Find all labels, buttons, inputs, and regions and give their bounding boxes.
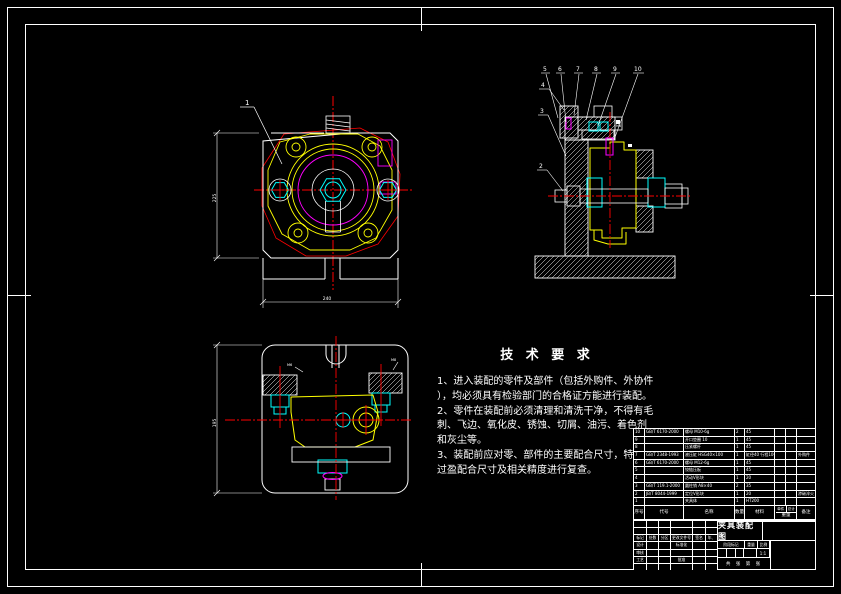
bom-cell: 1 xyxy=(735,452,744,459)
bom-cell: 1 xyxy=(735,467,744,474)
rev-header-count: 处数 xyxy=(647,535,658,541)
rev-header-date: 年、月、日 xyxy=(706,535,717,541)
side-section-view: M6 5 6 7 8 9 10 4 3 2 xyxy=(510,60,700,290)
bom-header-name: 名称 xyxy=(684,506,734,519)
bottom-dimensions xyxy=(213,342,398,496)
bom-cell xyxy=(645,437,683,444)
rev-header-doc: 更改文件号 xyxy=(671,535,692,541)
sheet-count: 共 张 第 张 xyxy=(717,557,771,570)
bom-cell: 6 xyxy=(634,460,644,467)
bom-cell xyxy=(775,475,785,482)
technical-requirements-title: 技 术 要 求 xyxy=(437,344,657,363)
front-view: 240 225 1 xyxy=(210,90,420,310)
bom-header-unit: 单件 xyxy=(776,506,787,512)
bom-cell xyxy=(645,475,683,482)
drawing-title: 夹具装配图 xyxy=(717,521,763,541)
rev-header-sign: 签名 xyxy=(693,535,705,541)
bom-cell: 45 xyxy=(745,467,774,474)
bottom-dim-right-label: M8 xyxy=(391,358,396,362)
bom-cell: 45 xyxy=(745,460,774,467)
bom-cell xyxy=(786,498,796,505)
bom-cell xyxy=(786,452,796,459)
centering-mark-bottom xyxy=(421,563,422,587)
bom-cell: 20 xyxy=(745,475,774,482)
bom-cell: GB/T 6170-2000 xyxy=(645,429,683,436)
bom-cell: 渗碳淬火 xyxy=(797,491,815,498)
bom-header-num: 序号 xyxy=(634,506,644,519)
title-block-code-cell xyxy=(762,521,816,541)
bom-cell: 1 xyxy=(735,491,744,498)
bom-cell: 45 xyxy=(745,437,774,444)
tech-req-line: 过盈配合尺寸及相关精度进行复查。 xyxy=(437,464,657,479)
role-approve: 批准 xyxy=(671,557,692,563)
title-block: 标记 处数 分区 更改文件号 签名 年、月、日 设计 标准化 审核 工艺 批准 … xyxy=(633,520,816,570)
bom-cell: 35 xyxy=(745,483,774,490)
bom-cell: 1 xyxy=(735,498,744,505)
tech-req-line: 3、装配前应对零、部件的主要配合尺寸，特别是 xyxy=(437,449,657,464)
bottom-plate-outline xyxy=(262,345,408,493)
bottom-dim-left-label: M6 xyxy=(287,363,292,367)
bom-cell: 圆柱销 A8×40 xyxy=(684,483,734,490)
front-balloon-1: 1 xyxy=(240,99,282,164)
front-seal-ring-magenta xyxy=(298,140,396,225)
bom-cell: 压紧螺杆 xyxy=(684,444,734,451)
bom-cell: 2 xyxy=(735,429,744,436)
bom-cell xyxy=(775,460,785,467)
bom-header-note: 备注 xyxy=(797,506,815,519)
bom-cell: 外购件 xyxy=(797,452,815,459)
side-fixture-body-hatched xyxy=(535,106,675,278)
bom-cell: 45 xyxy=(745,429,774,436)
bom-cell xyxy=(775,452,785,459)
bom-cell: 开口垫圈 10 xyxy=(684,437,734,444)
svg-text:7: 7 xyxy=(576,66,580,73)
bom-header-qty: 数量 xyxy=(735,506,744,519)
bom-header-material: 材料 xyxy=(745,506,774,519)
bom-cell: 铰链压板 xyxy=(684,467,734,474)
tech-req-line: 2、零件在装配前必须清理和清洗干净，不得有毛 xyxy=(437,405,657,420)
bom-cell xyxy=(645,498,683,505)
bom-cell xyxy=(786,475,796,482)
bom-cell: 夹具体 xyxy=(684,498,734,505)
side-workpiece-yellow xyxy=(590,142,636,244)
bom-cell xyxy=(797,498,815,505)
svg-text:5: 5 xyxy=(543,66,547,73)
tech-req-line: 和灰尘等。 xyxy=(437,434,657,449)
title-block-revision-grid: 标记 处数 分区 更改文件号 签名 年、月、日 设计 标准化 审核 工艺 批准 xyxy=(634,521,717,569)
front-pump-body-yellow xyxy=(268,134,392,250)
technical-requirements: 技 术 要 求 1、进入装配的零件及部件（包括外购件、外协件 ），均必须具有检验… xyxy=(437,344,657,479)
svg-text:4: 4 xyxy=(541,82,545,89)
centering-mark-right xyxy=(810,295,834,296)
tech-req-line: 1、进入装配的零件及部件（包括外购件、外协件 xyxy=(437,375,657,390)
bom-cell: 液压缸 HSG40×100 xyxy=(684,452,734,459)
bom-cell: GB/T 6170-2000 xyxy=(645,460,683,467)
bom-cell xyxy=(786,429,796,436)
bom-cell xyxy=(797,444,815,451)
role-standard: 标准化 xyxy=(671,542,692,549)
bom-cell: 定位V形块 xyxy=(684,491,734,498)
bom-cell: 1 xyxy=(735,437,744,444)
bom-cell xyxy=(775,483,785,490)
bom-cell xyxy=(645,444,683,451)
bottom-dim-height-text: 195 xyxy=(212,419,218,428)
role-check: 审核 xyxy=(634,550,646,556)
bom-cell xyxy=(775,444,785,451)
role-design: 设计 xyxy=(634,542,646,549)
side-balloon-labels-top: 5 6 7 8 9 10 xyxy=(543,66,642,73)
bom-cell: 20 xyxy=(745,491,774,498)
front-dim-height-text: 225 xyxy=(212,194,218,203)
bom-header-weight-label: 重量 xyxy=(776,513,796,519)
bom-cell: HT200 xyxy=(745,498,774,505)
front-dim-width-text: 240 xyxy=(323,296,332,302)
svg-text:9: 9 xyxy=(613,66,617,73)
bom-cell xyxy=(645,467,683,474)
bom-cell xyxy=(775,491,785,498)
bom-cell: 1 xyxy=(735,460,744,467)
bom-cell xyxy=(797,467,815,474)
bom-cell xyxy=(797,437,815,444)
bom-cell xyxy=(797,460,815,467)
bom-cell: 5 xyxy=(634,467,644,474)
bom-cell: GB/T 119.1-2000 xyxy=(645,483,683,490)
bom-cell: 10 xyxy=(634,429,644,436)
bom-cell xyxy=(786,437,796,444)
centering-mark-left xyxy=(7,295,31,296)
bom-cell: 45 xyxy=(745,444,774,451)
svg-text:3: 3 xyxy=(540,108,544,115)
bottom-section-view: 195 M6 M8 xyxy=(205,330,420,510)
bottom-fasteners-cyan xyxy=(271,393,390,473)
bom-cell: GB/T 2348-1993 xyxy=(645,452,683,459)
bottom-base-band xyxy=(292,447,390,490)
bom-cell: 1 xyxy=(735,475,744,482)
bom-cell: 1 xyxy=(634,498,644,505)
bom-cell xyxy=(786,483,796,490)
side-balloon-labels-left: 4 3 2 xyxy=(539,82,545,170)
bom-cell xyxy=(775,498,785,505)
title-block-number-cell xyxy=(770,540,816,570)
side-balloons-left xyxy=(537,89,566,191)
bom-cell xyxy=(775,437,785,444)
bom-cell: 8 xyxy=(634,444,644,451)
svg-text:10: 10 xyxy=(634,66,642,73)
bom-cell xyxy=(786,460,796,467)
bottom-centerlines xyxy=(225,336,413,500)
rev-header-mark: 标记 xyxy=(634,535,646,541)
bom-cell: 1 xyxy=(735,444,744,451)
bom-cell xyxy=(786,444,796,451)
bom-cell xyxy=(797,429,815,436)
tech-req-line: ），均必须具有检验部门的合格证方能进行装配。 xyxy=(437,390,657,405)
rev-header-zone: 分区 xyxy=(659,535,670,541)
bom-cell xyxy=(797,475,815,482)
bom-cell: 缸径40 行程100 xyxy=(745,452,774,459)
svg-text:2: 2 xyxy=(539,163,543,170)
bom-cell: 活动V形块 xyxy=(684,475,734,482)
bom-cell: 9 xyxy=(634,437,644,444)
bom-cell xyxy=(786,491,796,498)
svg-text:6: 6 xyxy=(558,66,562,73)
bom-cell xyxy=(775,467,785,474)
svg-text:8: 8 xyxy=(594,66,598,73)
bom-cell: 螺母 M10-6g xyxy=(684,429,734,436)
bom-header-total: 总计 xyxy=(787,506,797,512)
bom-header-weight: 单件 总计 重量 xyxy=(775,506,796,519)
centering-mark-top xyxy=(421,7,422,31)
role-process: 工艺 xyxy=(634,557,646,563)
bom-header-code: 代号 xyxy=(645,506,683,519)
bom-cell: JB/T 8044-1999 xyxy=(645,491,683,498)
bom-table: 10GB/T 6170-2000螺母 M10-6g245 9开口垫圈 10145… xyxy=(633,428,816,520)
front-balloon-1-label: 1 xyxy=(245,99,249,107)
bom-cell: 2 xyxy=(634,491,644,498)
bom-cell xyxy=(786,467,796,474)
bom-cell: 螺母 M12-6g xyxy=(684,460,734,467)
bom-cell: 4 xyxy=(634,475,644,482)
bom-cell xyxy=(797,483,815,490)
bom-cell: 3 xyxy=(634,483,644,490)
bom-cell xyxy=(775,429,785,436)
tech-req-line: 刺、飞边、氧化皮、锈蚀、切屑、油污、着色剂 xyxy=(437,419,657,434)
bottom-seal-magenta xyxy=(323,473,342,480)
bom-cell: 2 xyxy=(735,483,744,490)
bom-cell: 7 xyxy=(634,452,644,459)
drawing-sheet: 240 225 1 xyxy=(0,0,841,594)
